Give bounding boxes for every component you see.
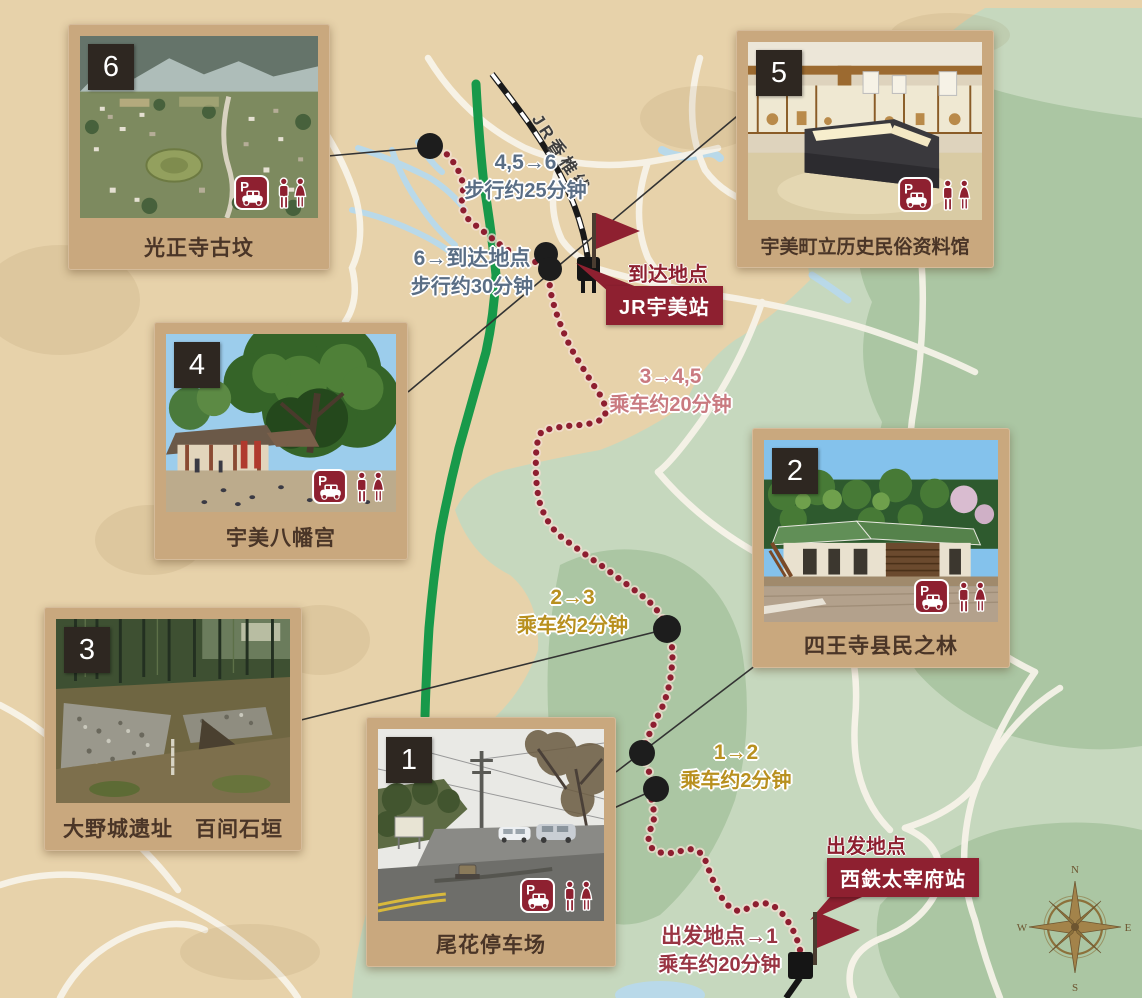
route-label-line2: 乘车约20分钟 — [632, 951, 807, 979]
route-label-line2: 乘车约2分钟 — [490, 612, 655, 640]
toilet-icon — [955, 581, 990, 614]
parking-icon: P — [234, 175, 269, 210]
route-label-line2: 乘车约2分钟 — [650, 767, 822, 795]
spot-card-6: 6 P 光正寺古坟 — [68, 24, 330, 270]
departure-station-box: 西鉄太宰府站 — [827, 858, 979, 897]
parking-icon: P — [914, 579, 949, 614]
toilet-icon — [353, 471, 388, 504]
arrival-caption: 到达地点 — [628, 258, 708, 287]
compass-w-label: W — [1017, 922, 1028, 934]
spot-caption: 宇美八幡宫 — [154, 514, 408, 560]
spot-number: 5 — [756, 50, 802, 96]
spot-photo-aerial-kofun: 6 P — [80, 36, 318, 218]
route-label-line1: 6→到达地点 — [382, 244, 562, 273]
spot-card-5: 5 P 宇美町立历史民俗资料馆 — [736, 30, 994, 268]
route-label-line2: 步行约30分钟 — [382, 273, 562, 301]
spot-number: 1 — [386, 737, 432, 783]
spot-dot-3 — [653, 615, 681, 643]
spot-photo-museum: 5 P — [748, 42, 982, 220]
route-label-bus-2-to-3: 2→3 乘车约2分钟 — [490, 583, 655, 640]
route-label-walk-6-to-arrival: 6→到达地点 步行约30分钟 — [382, 244, 562, 301]
parking-icon: P — [312, 469, 347, 504]
route-label-line1: 2→3 — [490, 583, 655, 612]
route-label-line1: 3→4,5 — [583, 362, 758, 391]
spot-photo-shrine: 4 P — [166, 334, 396, 512]
toilet-icon — [939, 179, 974, 212]
route-label-line1: 4,5→6 — [438, 148, 613, 177]
spot-caption: 四王寺县民之林 — [752, 622, 1010, 668]
route-label-bus-start-to-1: 出发地点→1 乘车约20分钟 — [632, 922, 807, 979]
spot-photo-stone-wall: 3 — [56, 619, 290, 803]
spot-number: 3 — [64, 627, 110, 673]
spot-number: 2 — [772, 448, 818, 494]
compass-rose: N S W E — [1015, 859, 1135, 995]
spot-caption: 尾花停车场 — [366, 921, 616, 967]
compass-s-label: S — [1072, 982, 1078, 994]
spot-caption: 大野城遗址 百间石垣 — [44, 805, 302, 851]
route-label-line1: 1→2 — [650, 738, 822, 767]
spot-card-3: 3 大野城遗址 百间石垣 — [44, 607, 302, 851]
compass-e-label: E — [1125, 922, 1132, 934]
compass-n-label: N — [1071, 864, 1079, 876]
spot-number: 6 — [88, 44, 134, 90]
spot-caption: 光正寺古坟 — [68, 224, 330, 270]
spot-card-4: 4 P 宇美八幡宫 — [154, 322, 408, 560]
route-label-line2: 步行约25分钟 — [438, 177, 613, 205]
departure-caption: 出发地点 — [826, 830, 906, 859]
parking-icon: P — [898, 177, 933, 212]
spot-number: 4 — [174, 342, 220, 388]
route-label-bus-3-to-45: 3→4,5 乘车约20分钟 — [583, 362, 758, 419]
route-label-line2: 乘车约20分钟 — [583, 391, 758, 419]
tour-route-map: 4,5→6 步行约25分钟 6→到达地点 步行约30分钟 3→4,5 乘车约20… — [0, 0, 1142, 998]
toilet-icon — [275, 177, 310, 210]
spot-card-2: 2 P 四王寺县民之林 — [752, 428, 1010, 668]
arrival-station-box: JR宇美站 — [606, 286, 723, 325]
spot-card-1: 1 P 尾花停车场 — [366, 717, 616, 967]
route-label-bus-1-to-2: 1→2 乘车约2分钟 — [650, 738, 822, 795]
spot-caption: 宇美町立历史民俗资料馆 — [736, 222, 994, 268]
toilet-icon — [561, 880, 596, 913]
spot-photo-parking-lot: 1 P — [378, 729, 604, 921]
route-label-walk-45-to-6: 4,5→6 步行约25分钟 — [438, 148, 613, 205]
spot-photo-forest-lodge: 2 P — [764, 440, 998, 622]
parking-icon: P — [520, 878, 555, 913]
route-label-line1: 出发地点→1 — [632, 922, 807, 951]
